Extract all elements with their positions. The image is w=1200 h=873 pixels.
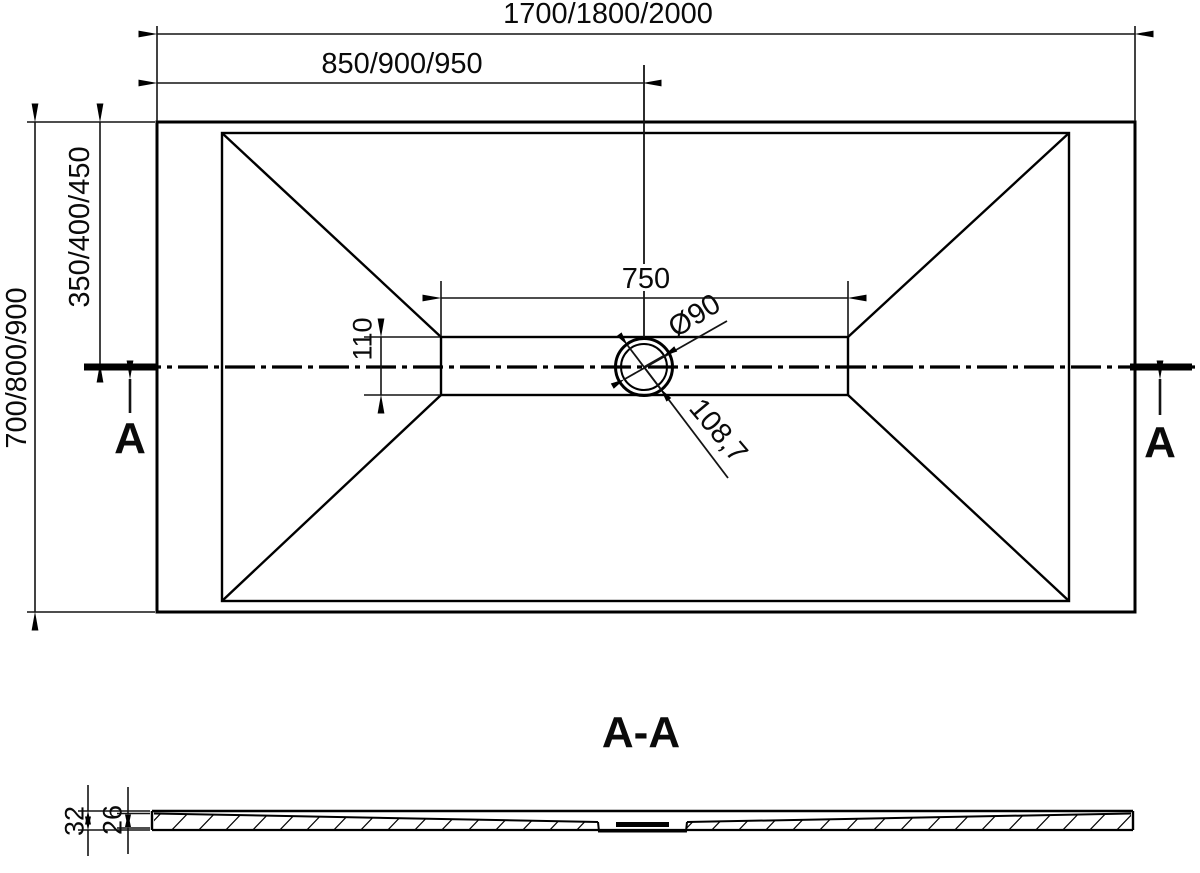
slope-diagonal-bottom-right	[848, 395, 1069, 601]
dim-total-depth-label: 700/800/900	[1, 287, 33, 448]
drain-diameter-arrow-90	[644, 356, 664, 367]
hatch-line	[1139, 808, 1165, 835]
section-title: A-A	[602, 708, 680, 757]
slope-diagonal-bottom-left	[222, 395, 441, 601]
dim-total-height-label: 32	[59, 806, 89, 836]
dim-drain-diameter-label: Ø90	[663, 288, 726, 344]
section-view: A-A 32 26	[59, 708, 1165, 856]
dim-center-offset-depth-label: 350/400/450	[64, 146, 96, 307]
slope-diagonal-top-right	[848, 133, 1069, 337]
drain-flange-arrow-108	[644, 367, 661, 389]
dim-total-width-label: 1700/1800/2000	[503, 0, 713, 30]
cut-letter-right: A	[1144, 418, 1176, 467]
dim-channel-width-label: 110	[347, 317, 377, 360]
shower-tray-drawing: 1700/1800/2000 850/900/950 700/800/900 3…	[0, 0, 1200, 873]
cut-letter-left: A	[114, 414, 146, 463]
section-cut-marks: A A	[84, 367, 1192, 467]
slope-diagonal-top-left	[222, 133, 441, 337]
plan-dimensions: 1700/1800/2000 850/900/950 700/800/900 3…	[1, 0, 1135, 612]
dim-inner-height-label: 26	[97, 805, 127, 835]
dim-center-offset-width-label: 850/900/950	[321, 48, 482, 80]
section-dimensions: 32 26	[59, 785, 150, 856]
dim-channel-length-label: 750	[622, 263, 670, 295]
plan-view	[84, 65, 1196, 612]
technical-drawing-page: 1700/1800/2000 850/900/950 700/800/900 3…	[0, 0, 1200, 873]
